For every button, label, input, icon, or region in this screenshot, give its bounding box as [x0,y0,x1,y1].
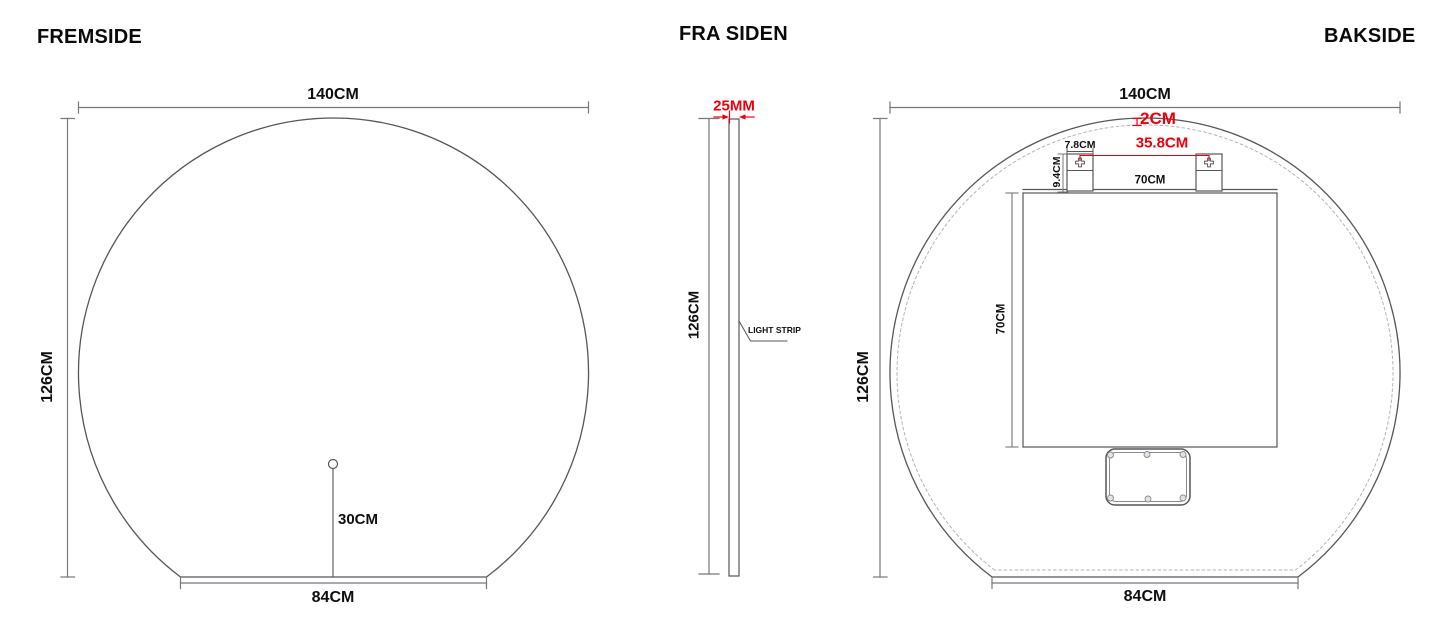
panel-width-dimension-label: 70CM [1135,175,1166,187]
side-thickness-dimension-label: 25MM [713,99,755,114]
drawing-linework [0,0,1445,632]
side-height-dimension-label: 126CM [687,291,702,339]
back-bottom-dimension-label: 84CM [1124,589,1167,605]
back-width-dimension-label: 140CM [1119,87,1171,103]
light-strip-label: LIGHT STRIP [748,326,801,335]
bracket-spacing-dimension-line [1080,156,1209,161]
screw-icon [1145,496,1151,502]
back-panel-outline [1023,193,1277,447]
screw-icon [1144,452,1150,458]
back-view-title: BAKSIDE [1324,26,1415,46]
junction-box [1106,449,1190,505]
arrowhead-left-icon [739,114,746,119]
bracket-height-dimension-label: 9.4CM [1052,157,1063,188]
front-height-dimension-line [61,119,75,578]
side-profile-outline [729,119,739,576]
front-view-title: FREMSIDE [37,27,142,47]
screw-icon [1180,495,1186,501]
sensor-height-dimension-label: 30CM [338,512,378,527]
sensor-dot [329,460,338,469]
back-height-dimension-line [874,119,888,578]
front-view-drawing [61,102,589,589]
front-width-dimension-line [79,102,589,113]
front-bottom-dimension-label: 84CM [312,590,355,606]
front-height-dimension-label: 126CM [40,351,56,403]
front-bottom-dimension-line [181,578,487,589]
panel-height-dimension-label: 70CM [996,304,1008,335]
side-height-dimension-line [699,119,719,575]
screw-icon [1108,495,1114,501]
bracket-width-dimension-label: 7.8CM [1065,140,1096,151]
side-view-title: FRA SIDEN [679,24,788,44]
arrowhead-right-icon [723,114,730,119]
front-width-dimension-label: 140CM [307,87,359,103]
mirror-dimension-drawing: FREMSIDE FRA SIDEN BAKSIDE 140CM 126CM 8… [0,0,1445,632]
screw-icon [1108,452,1114,458]
bracket-spacing-dimension-label: 35.8CM [1136,136,1189,151]
panel-height-dimension-line [1006,193,1018,447]
back-height-dimension-label: 126CM [856,351,872,403]
led-inset-dimension-label: 2CM [1140,110,1176,127]
screw-icon [1180,452,1186,458]
back-panel [1023,190,1277,448]
back-bottom-dimension-line [992,578,1298,589]
side-view-drawing [699,111,787,576]
